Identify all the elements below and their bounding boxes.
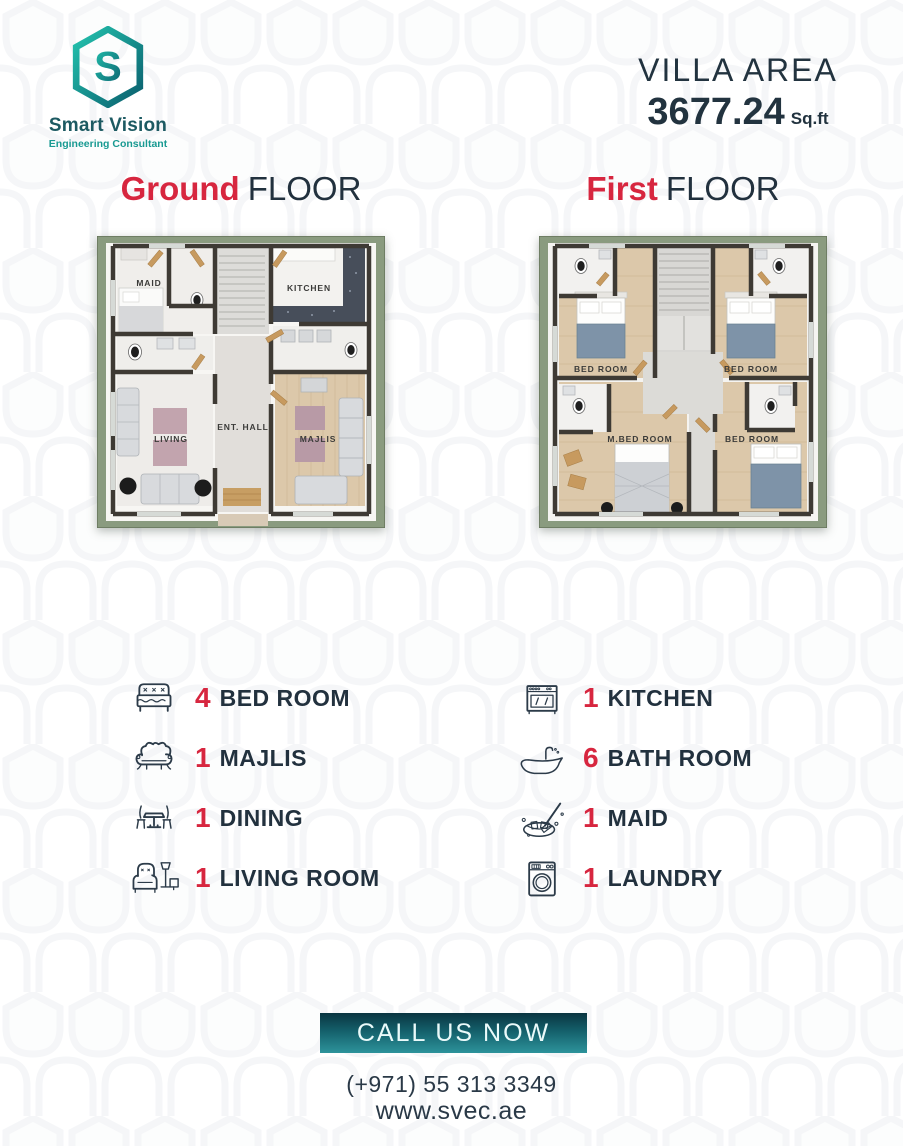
- ground-floor-heading: GroundFLOOR: [97, 170, 385, 208]
- feature-row-maid: 1 MAID: [514, 788, 752, 848]
- room-label-hall: ENT. HALL: [217, 422, 269, 432]
- feature-row-laundry: 1 LAUNDRY: [514, 848, 752, 908]
- feature-count: 1: [195, 862, 211, 894]
- room-label-bedroom-2: BED ROOM: [724, 364, 778, 374]
- feature-row-kitchen: 1 KITCHEN: [514, 668, 752, 728]
- feature-label: MAJLIS: [220, 745, 307, 772]
- villa-area-value: 3677.24: [647, 91, 784, 133]
- feature-row-bedrooms: 4 BED ROOM: [126, 668, 380, 728]
- first-floor-heading: FirstFLOOR: [539, 170, 827, 208]
- first-floor-plan: BED ROOM BED ROOM M.BED ROOM BED ROOM: [539, 236, 827, 528]
- feature-count: 1: [195, 802, 211, 834]
- brand-tagline: Engineering Consultant: [38, 138, 178, 150]
- feature-row-living: 1 LIVING ROOM: [126, 848, 380, 908]
- room-label-bedroom-3: BED ROOM: [725, 434, 779, 444]
- features-column-left: 4 BED ROOM 1 MAJLIS 1 DINING: [126, 668, 380, 908]
- feature-label: DINING: [220, 805, 304, 832]
- stove-icon: [514, 676, 570, 720]
- bed-icon: [126, 676, 182, 720]
- room-label-kitchen: KITCHEN: [287, 283, 331, 293]
- brand-name: Smart Vision: [38, 115, 178, 137]
- dining-table-icon: [126, 796, 182, 840]
- villa-area-block: VILLA AREA 3677.24Sq.ft: [608, 52, 868, 134]
- room-label-master-bedroom: M.BED ROOM: [607, 434, 672, 444]
- features-column-right: 1 KITCHEN 6 BATH ROOM 1 MAID: [514, 668, 752, 908]
- first-floor-heading-rest: FLOOR: [666, 170, 780, 207]
- logo-letter: S: [94, 42, 122, 89]
- feature-label: BATH ROOM: [608, 745, 753, 772]
- feature-count: 1: [195, 742, 211, 774]
- feature-label: LIVING ROOM: [220, 865, 380, 892]
- feature-count: 1: [583, 862, 599, 894]
- call-us-now-button[interactable]: CALL US NOW: [320, 1013, 587, 1053]
- ground-floor-heading-rest: FLOOR: [248, 170, 362, 207]
- first-floor-heading-accent: First: [586, 170, 658, 207]
- feature-count: 1: [583, 682, 599, 714]
- room-label-living: LIVING: [154, 434, 188, 444]
- logo-hexagon-icon: S: [71, 26, 145, 108]
- feature-count: 6: [583, 742, 599, 774]
- feature-row-bathroom: 6 BATH ROOM: [514, 728, 752, 788]
- feature-label: KITCHEN: [608, 685, 714, 712]
- villa-area-label: VILLA AREA: [608, 52, 868, 89]
- website-link[interactable]: www.svec.ae: [0, 1097, 903, 1126]
- feature-label: MAID: [608, 805, 669, 832]
- phone-number[interactable]: (+971) 55 313 3349: [0, 1071, 903, 1098]
- room-label-maid: MAID: [136, 278, 161, 288]
- bathtub-icon: [514, 738, 570, 778]
- room-label-bedroom-1: BED ROOM: [574, 364, 628, 374]
- armchair-icon: [126, 856, 182, 900]
- brand-logo: S Smart Vision Engineering Consultant: [38, 26, 178, 150]
- washing-machine-icon: [514, 856, 570, 900]
- sofa-icon: [126, 736, 182, 780]
- features-section: 4 BED ROOM 1 MAJLIS 1 DINING: [0, 668, 903, 918]
- cleaning-icon: [514, 796, 570, 840]
- room-label-majlis: MAJLIS: [300, 434, 337, 444]
- villa-area-unit: Sq.ft: [791, 109, 829, 128]
- feature-count: 1: [583, 802, 599, 834]
- ground-floor-plan: MAID KITCHEN LIVING ENT. HALL MAJLIS: [97, 236, 385, 528]
- flyer-page: S Smart Vision Engineering Consultant VI…: [0, 0, 903, 1146]
- feature-count: 4: [195, 682, 211, 714]
- feature-label: LAUNDRY: [608, 865, 723, 892]
- feature-label: BED ROOM: [220, 685, 351, 712]
- feature-row-dining: 1 DINING: [126, 788, 380, 848]
- feature-row-majlis: 1 MAJLIS: [126, 728, 380, 788]
- ground-floor-heading-accent: Ground: [121, 170, 240, 207]
